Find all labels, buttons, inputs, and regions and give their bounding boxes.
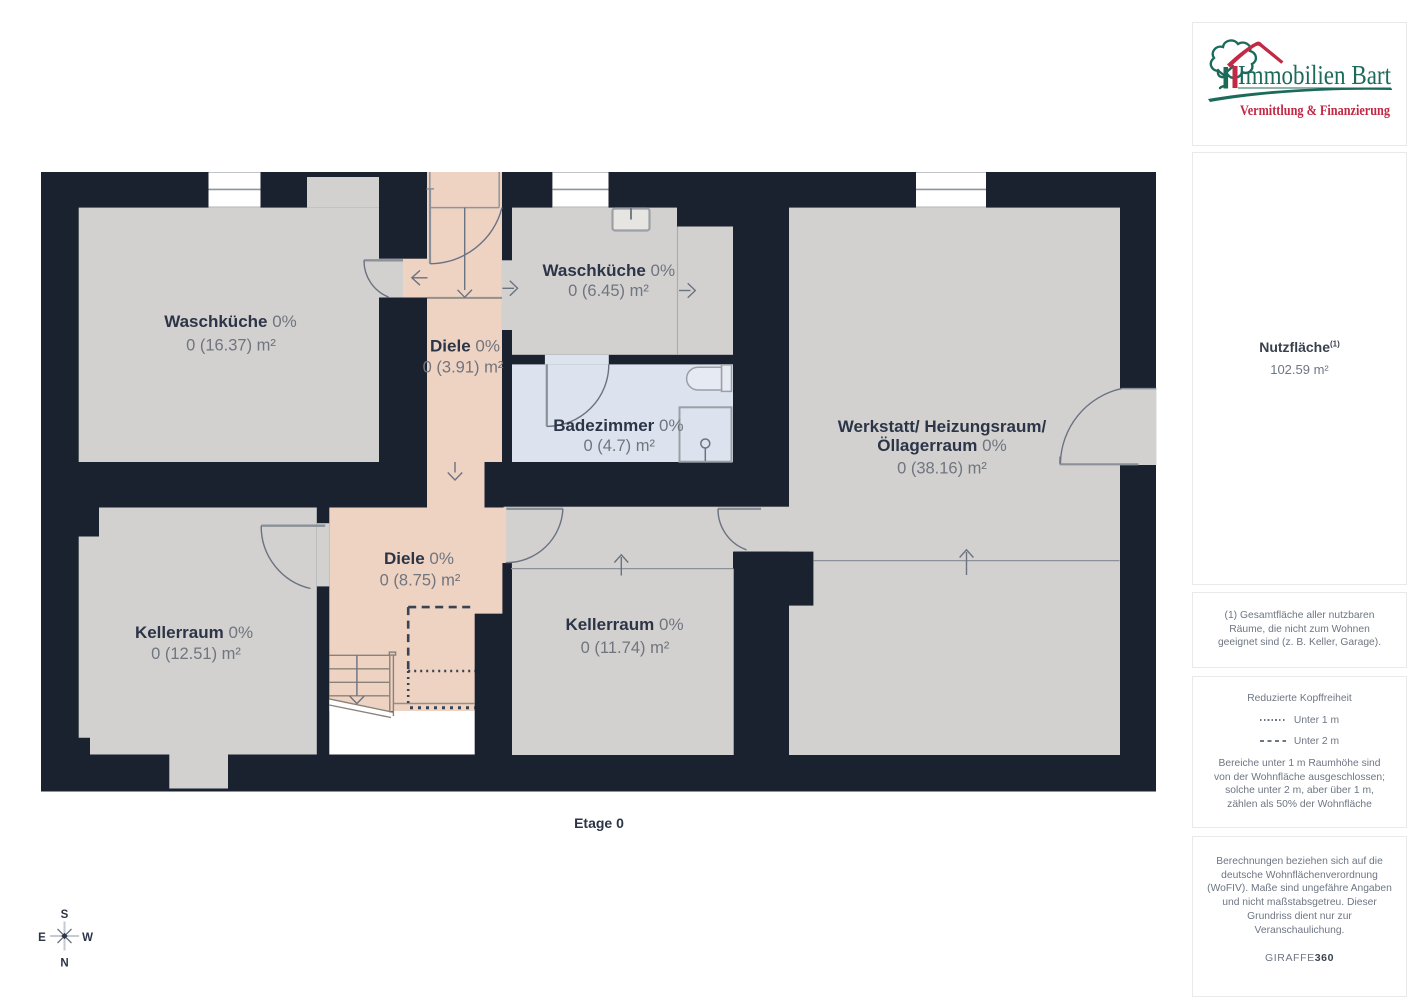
- svg-text:Werkstatt/ Heizungsraum/: Werkstatt/ Heizungsraum/: [838, 417, 1047, 436]
- svg-text:Kellerraum 0%: Kellerraum 0%: [565, 615, 683, 634]
- svg-text:0 (16.37) m²: 0 (16.37) m²: [186, 337, 276, 355]
- svg-text:0 (3.91) m²: 0 (3.91) m²: [423, 359, 504, 377]
- svg-text:0 (12.51) m²: 0 (12.51) m²: [151, 645, 241, 663]
- svg-text:Kellerraum 0%: Kellerraum 0%: [135, 623, 253, 642]
- svg-text:0 (11.74) m²: 0 (11.74) m²: [581, 639, 670, 657]
- svg-text:E: E: [38, 932, 46, 944]
- svg-text:Vermittlung & Finanzierung: Vermittlung & Finanzierung: [1240, 103, 1391, 119]
- svg-text:Immobilien Bart: Immobilien Bart: [1238, 60, 1391, 90]
- svg-text:0 (8.75) m²: 0 (8.75) m²: [380, 572, 461, 590]
- svg-text:N: N: [60, 958, 68, 970]
- svg-text:Waschküche 0%: Waschküche 0%: [542, 261, 675, 280]
- svg-text:Diele 0%: Diele 0%: [384, 549, 454, 568]
- svg-text:0 (38.16) m²: 0 (38.16) m²: [897, 460, 987, 478]
- svg-text:0 (4.7) m²: 0 (4.7) m²: [583, 437, 655, 455]
- svg-text:Etage 0: Etage 0: [574, 815, 624, 831]
- svg-text:S: S: [61, 909, 69, 921]
- svg-text:W: W: [82, 932, 93, 944]
- svg-text:Öllagerraum 0%: Öllagerraum 0%: [877, 436, 1006, 455]
- svg-text:Diele 0%: Diele 0%: [430, 337, 500, 356]
- svg-text:0 (6.45) m²: 0 (6.45) m²: [568, 282, 649, 300]
- svg-text:Badezimmer 0%: Badezimmer 0%: [553, 416, 683, 435]
- svg-text:Waschküche 0%: Waschküche 0%: [164, 312, 297, 331]
